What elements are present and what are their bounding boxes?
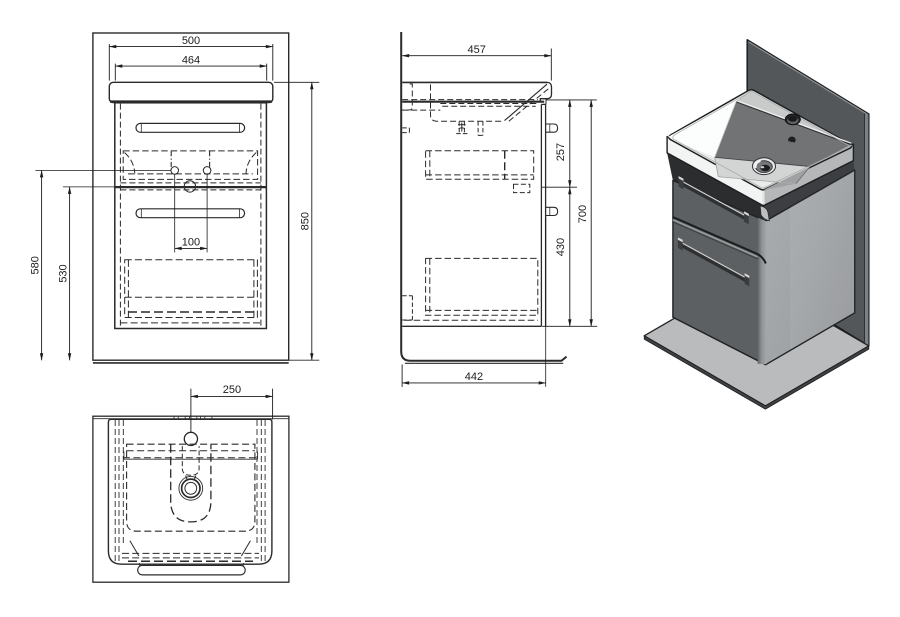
svg-text:700: 700 xyxy=(577,205,589,223)
svg-text:580: 580 xyxy=(29,256,41,274)
svg-text:430: 430 xyxy=(555,238,567,256)
svg-text:464: 464 xyxy=(182,54,200,66)
svg-text:500: 500 xyxy=(182,35,200,47)
svg-text:442: 442 xyxy=(465,371,483,383)
svg-text:530: 530 xyxy=(57,264,69,282)
svg-text:850: 850 xyxy=(300,212,312,230)
svg-text:457: 457 xyxy=(468,44,486,56)
svg-text:257: 257 xyxy=(555,143,567,161)
svg-text:250: 250 xyxy=(223,384,241,396)
svg-text:100: 100 xyxy=(182,236,200,248)
